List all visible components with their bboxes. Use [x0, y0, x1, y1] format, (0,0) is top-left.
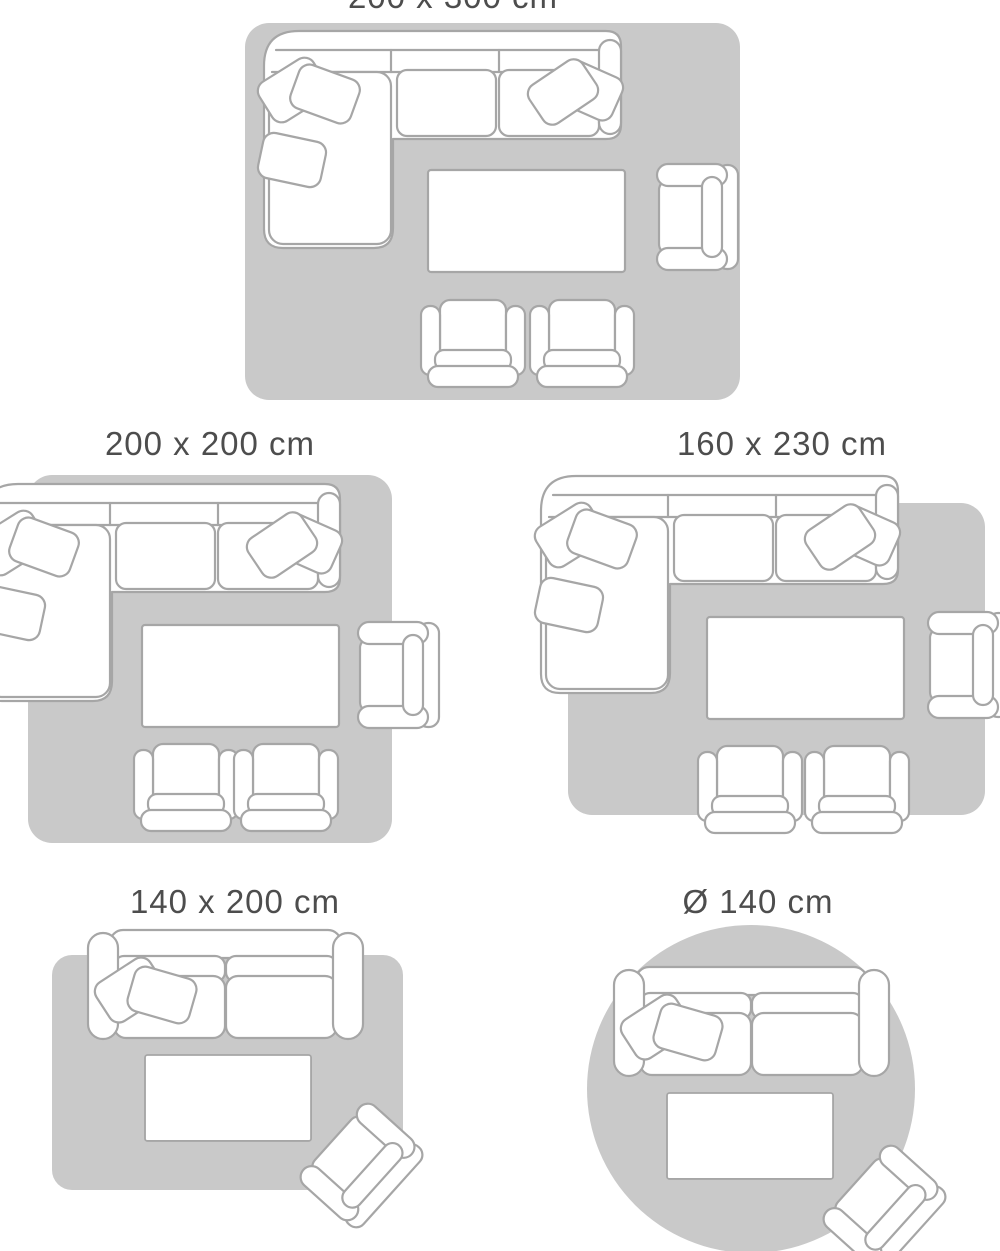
footstool-chair-icon	[134, 744, 238, 831]
footstool-chair-icon	[234, 744, 338, 831]
footstool-chair-icon	[805, 746, 909, 833]
armchair-icon	[657, 164, 738, 270]
footstool-chair-icon	[421, 300, 525, 387]
rug-size-guide: 200 x 300 cm 200 x 200 cm 160 x 230 cm 1…	[0, 0, 1000, 1251]
rug-diagram-160x230	[531, 476, 1000, 833]
footstool-chair-icon	[530, 300, 634, 387]
footstool-chair-icon	[698, 746, 802, 833]
coffee-table-icon	[428, 170, 625, 272]
two-seat-sofa-icon	[88, 930, 363, 1039]
armchair-icon	[928, 612, 1000, 718]
coffee-table-icon	[667, 1093, 833, 1179]
rug-diagram-200x200	[0, 475, 439, 843]
coffee-table-icon	[707, 617, 904, 719]
two-seat-sofa-icon	[614, 967, 889, 1076]
coffee-table-icon	[145, 1055, 311, 1141]
rug-diagram-d140	[587, 925, 950, 1251]
rug-diagram-200x300	[245, 23, 740, 400]
armchair-icon	[358, 622, 439, 728]
rug-diagram-140x200	[52, 930, 427, 1232]
coffee-table-icon	[142, 625, 339, 727]
rug-layout-diagrams	[0, 0, 1000, 1251]
